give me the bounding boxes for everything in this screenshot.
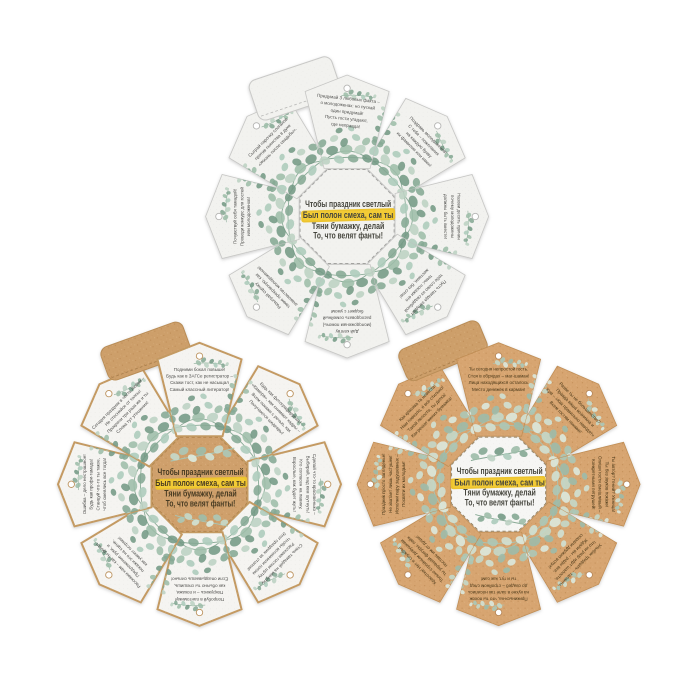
svg-text:Ты без звуков покажи: Ты без звуков покажи [604,462,609,508]
svg-text:Ты автор? Гений? Умница!: Ты автор? Гений? Умница! [611,456,617,512]
svg-text:Выбирай, над кем шутнуть!: Выбирай, над кем шутнуть! [305,456,311,513]
svg-text:То, что велят фанты!: То, что велят фанты! [313,231,383,242]
svg-text:бюджет с умом!: бюджет с умом! [331,309,364,314]
svg-text:чтоб смеялись все тогда!: чтоб смеялись все тогда! [102,458,107,511]
svg-text:или молодоженов!: или молодоженов! [246,197,251,236]
svg-text:Чтобы праздник светлый: Чтобы праздник светлый [158,467,244,478]
svg-text:как обычно ты спешишь,: как обычно ты спешишь, [174,583,226,588]
svg-text:до свадеб – стройном след: до свадеб – стройном след [470,583,528,589]
svg-text:Будь как в ЗАГСе регистратор –: Будь как в ЗАГСе регистратор – [166,374,233,379]
svg-text:Кто согласен на лавину,: Кто согласен на лавину, [299,459,304,509]
svg-text:Опиши гостя смешливый –: Опиши гостя смешливый – [598,456,604,513]
svg-text:То, что велят фанты!: То, что велят фанты! [465,498,535,509]
svg-text:Дай клятву: Дай клятву [335,329,359,335]
svg-text:расходовать семейный: расходовать семейный [322,316,371,322]
svg-text:на кухне в зале так носились: на кухне в зале так носились [468,590,529,595]
svg-text:Посвяти их молодым!: Посвяти их молодым! [401,462,406,507]
svg-text:Скажи тост, как не насыщал: Скажи тост, как не насыщал [170,380,229,385]
svg-text:Конкретными петрушей!: Конкретными петрушей! [591,459,597,510]
svg-text:Лица находящихся осталось: Лица находящихся осталось [469,380,529,385]
svg-text:Был полон смеха, сам ты: Был полон смеха, сам ты [303,210,394,221]
svg-text:То, что велят фанты!: То, что велят фанты! [166,498,236,509]
svg-text:Подними бокал повыше!: Подними бокал повыше! [174,367,226,372]
svg-text:Стоя в обрядах – маг-шаман!: Стоя в обрядах – маг-шаман! [468,373,530,378]
svg-text:Исполни пару задушевных –: Исполни пару задушевных – [395,454,400,514]
svg-text:Сделай что-то красивенько –: Сделай что-то красивенько – [312,454,318,515]
svg-text:Проводи конкурс для гостей: Проводи конкурс для гостей [238,187,244,246]
svg-text:Не хватает лишь частушек!: Не хватает лишь частушек! [388,456,393,513]
svg-text:(молодоженам помочь): (молодоженам помочь) [322,322,371,327]
svg-text:Ты сегодня непростой гость.: Ты сегодня непростой гость. [469,366,528,372]
svg-text:Будь как профи-тамада!: Будь как профи-тамада! [89,459,94,510]
svg-text:Место денежек в карман!: Место денежек в карман! [472,387,525,392]
svg-text:Прикинься-ка, что ты похож: Прикинься-ка, что ты похож [470,597,528,602]
svg-text:должны быть вместе!: должны быть вместе! [443,194,448,239]
svg-text:ты и тут, как сам!: ты и тут, как сам! [481,577,517,582]
svg-text:Чтобы праздник светлый: Чтобы праздник светлый [305,199,391,210]
svg-text:Самый классный литератор!: Самый классный литератор! [170,386,230,392]
svg-text:Чтобы праздник светлый: Чтобы праздник светлый [457,466,543,477]
svg-text:Станцуй что-то ты такое,: Станцуй что-то ты такое, [94,458,100,510]
svg-text:Ошибка – дело нестрашное!: Ошибка – дело нестрашное! [82,454,87,514]
svg-text:Покружись – и покажи,: Покружись – и покажи, [176,590,224,595]
svg-text:почему молодожены: почему молодожены [450,195,455,238]
svg-text:Праздник просто загляденье!: Праздник просто загляденье! [381,454,386,515]
svg-text:Попробуй в пантомиму!: Попробуй в пантомиму! [175,597,225,603]
svg-text:Был полон смеха, сам ты: Был полон смеха, сам ты [155,478,246,489]
svg-text:Если опаздываешь сильно!: Если опаздываешь сильно! [171,577,228,582]
svg-text:Взрослые, как будет жуть!: Взрослые, как будет жуть! [292,457,297,512]
svg-text:Назови десять причин: Назови десять причин [457,193,462,240]
svg-text:Почувствуй себя тамадой!: Почувствуй себя тамадой! [232,189,238,244]
